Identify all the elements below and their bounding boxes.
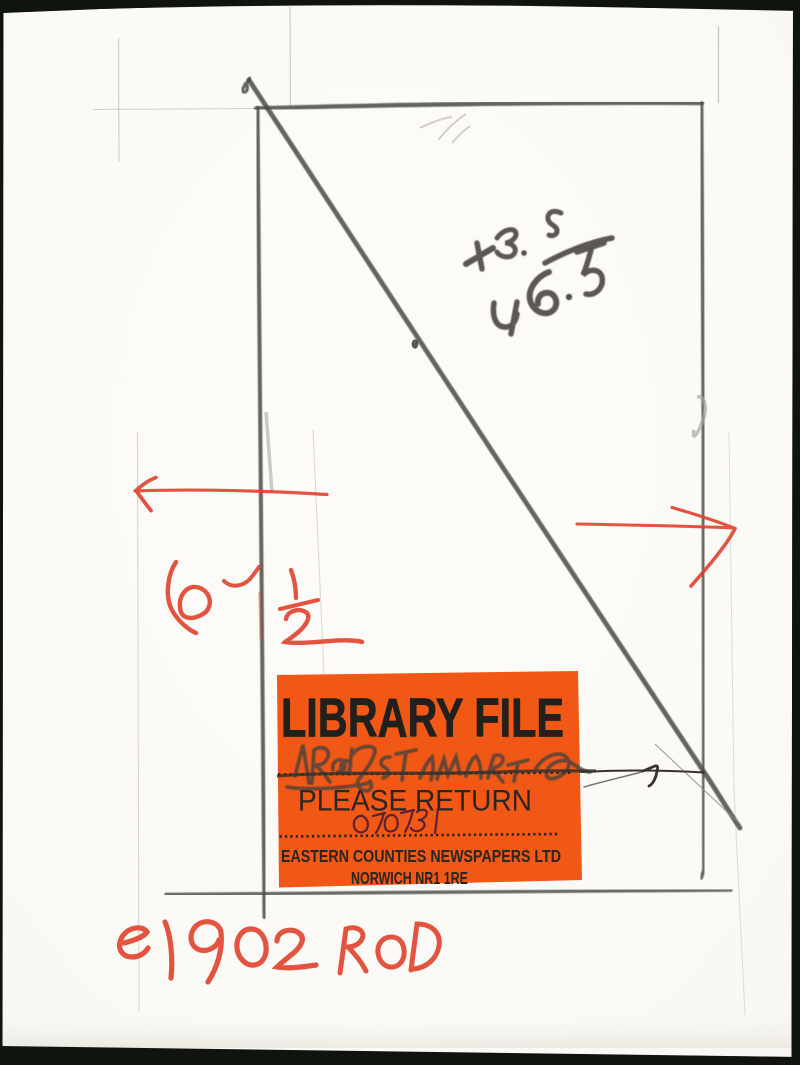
svg-text:LIBRARY FILE: LIBRARY FILE bbox=[281, 687, 564, 749]
svg-text:EASTERN COUNTIES NEWSPAPERS LT: EASTERN COUNTIES NEWSPAPERS LTD bbox=[281, 846, 561, 866]
svg-text:NORWICH NR1 1RE: NORWICH NR1 1RE bbox=[351, 868, 468, 888]
